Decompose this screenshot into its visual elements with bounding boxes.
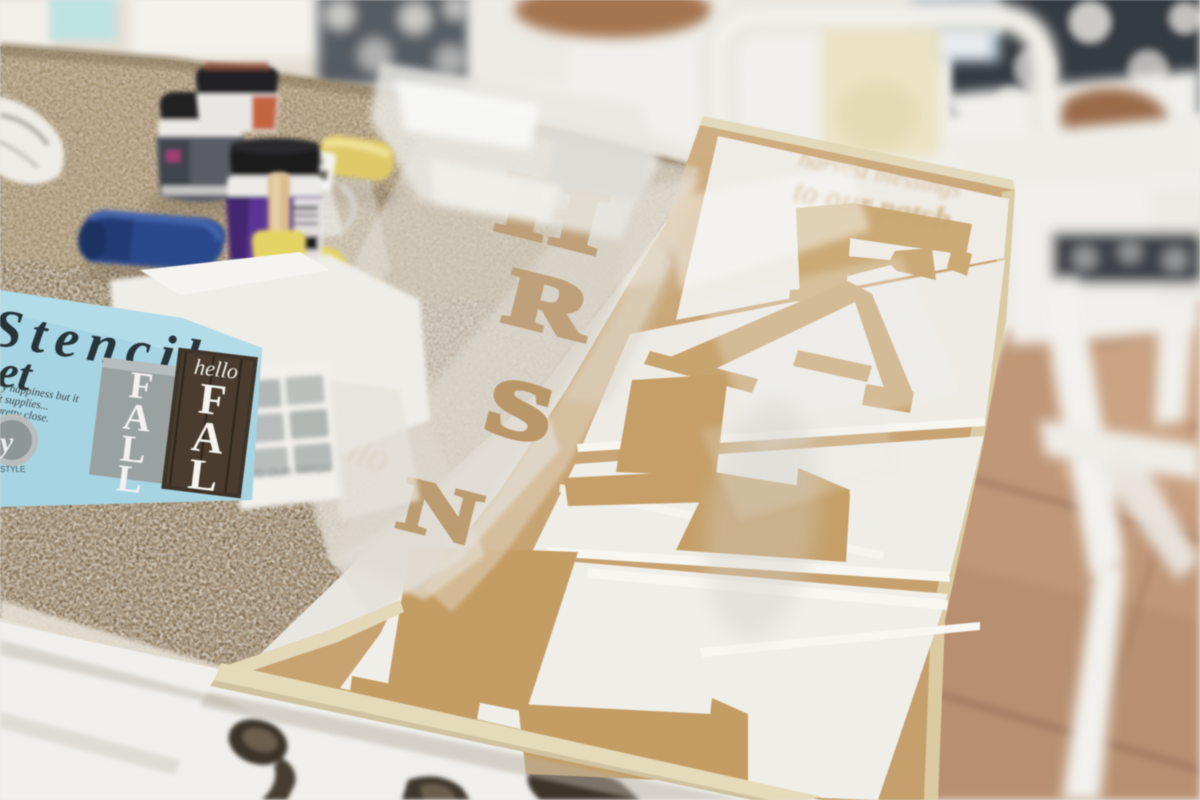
svg-text:STYLE: STYLE <box>0 465 25 474</box>
svg-text:y: y <box>0 426 14 459</box>
svg-text:L: L <box>115 457 145 502</box>
svg-text:L: L <box>186 449 221 501</box>
